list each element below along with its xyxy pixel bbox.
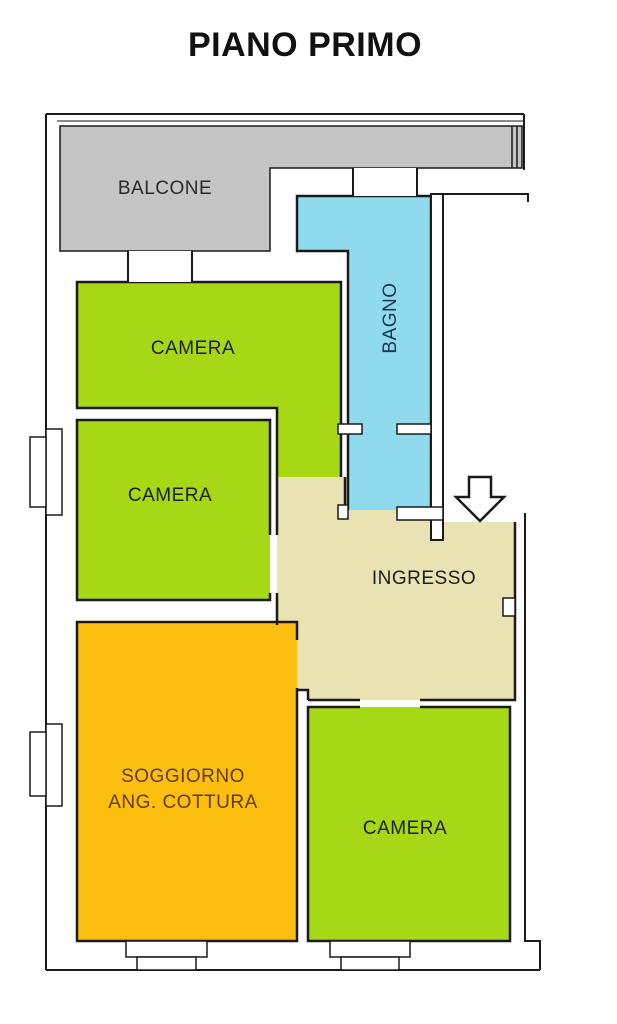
- soggiorno-bottom-window-sill: [126, 941, 207, 957]
- camera2-window: [30, 437, 46, 507]
- room-label-ingresso: INGRESSO: [372, 568, 476, 589]
- soggiorno-bottom-window: [137, 957, 196, 970]
- bagno-balcony-window: [353, 168, 417, 196]
- room-camera2-area: [77, 420, 270, 600]
- bagno-right-wall: [431, 194, 443, 540]
- camera2-window-sill: [46, 429, 62, 515]
- soggiorno-window-sill: [46, 724, 62, 806]
- room-label-camera1: CAMERA: [151, 338, 235, 359]
- bagno-divider-left-stub: [338, 424, 362, 434]
- soggiorno-window: [30, 732, 46, 796]
- room-label-soggiorno-line1: SOGGIORNO: [121, 766, 245, 787]
- camera1-balcony-door: [128, 251, 192, 282]
- bagno-door-jamb: [338, 505, 348, 519]
- outer-wall-right-bottom: [525, 513, 540, 970]
- room-label-balcone: BALCONE: [118, 178, 212, 199]
- entrance-arrow-icon: [456, 477, 504, 521]
- room-label-camera2: CAMERA: [128, 485, 212, 506]
- stairwell-top-wall: [443, 194, 528, 202]
- room-label-bagno: BAGNO: [380, 282, 401, 353]
- page-title: PIANO PRIMO: [188, 26, 422, 64]
- room-label-camera3: CAMERA: [363, 818, 447, 839]
- ingresso-door-notch: [503, 598, 515, 616]
- camera3-bottom-window: [341, 957, 399, 970]
- wall-ingresso-jog: [297, 690, 308, 700]
- floor-plan-drawing: PIANO PRIMO: [0, 0, 617, 1024]
- bagno-bottom-wall-foot: [397, 507, 443, 520]
- room-label-soggiorno-line2: ANG. COTTURA: [108, 792, 258, 813]
- bagno-divider-right-stub: [397, 424, 431, 434]
- room-areas: [60, 126, 522, 941]
- floor-plan-page: PIANO PRIMO: [0, 0, 617, 1024]
- camera3-bottom-window-sill: [330, 941, 410, 957]
